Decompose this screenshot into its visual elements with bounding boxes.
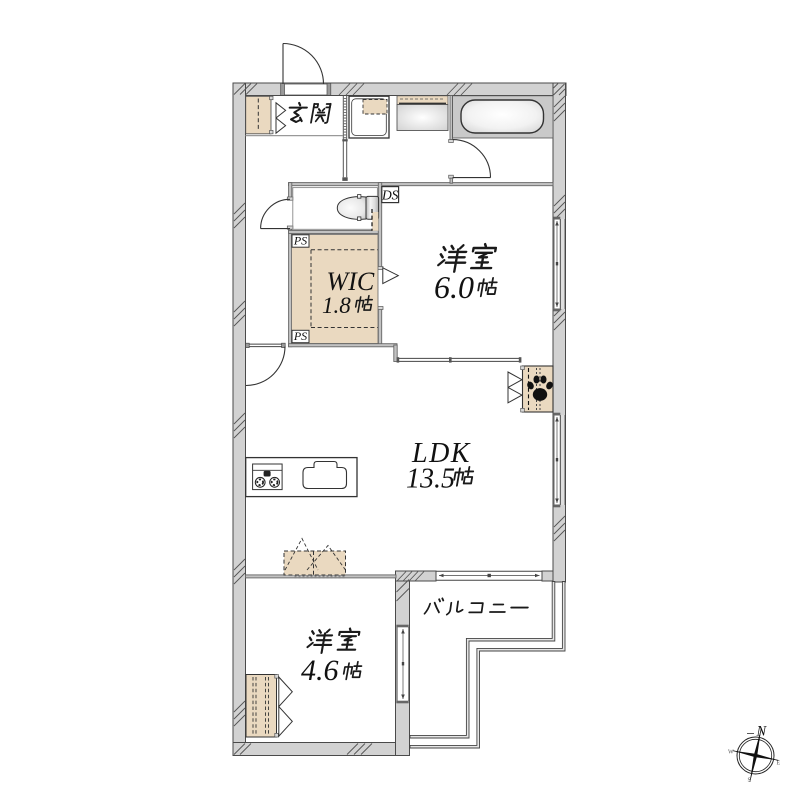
svg-text:13.5: 13.5	[406, 464, 455, 495]
svg-text:E: E	[777, 761, 781, 767]
svg-text:PS: PS	[293, 234, 307, 248]
svg-text:6.0: 6.0	[434, 269, 474, 305]
svg-text:4.6: 4.6	[301, 654, 339, 687]
svg-text:N: N	[756, 724, 768, 740]
svg-text:PS: PS	[293, 329, 307, 343]
svg-text:WIC: WIC	[327, 267, 375, 296]
svg-text:1.8: 1.8	[322, 293, 351, 318]
svg-text:W: W	[728, 750, 734, 756]
svg-text:DS: DS	[381, 187, 399, 202]
svg-text:S: S	[748, 778, 751, 784]
